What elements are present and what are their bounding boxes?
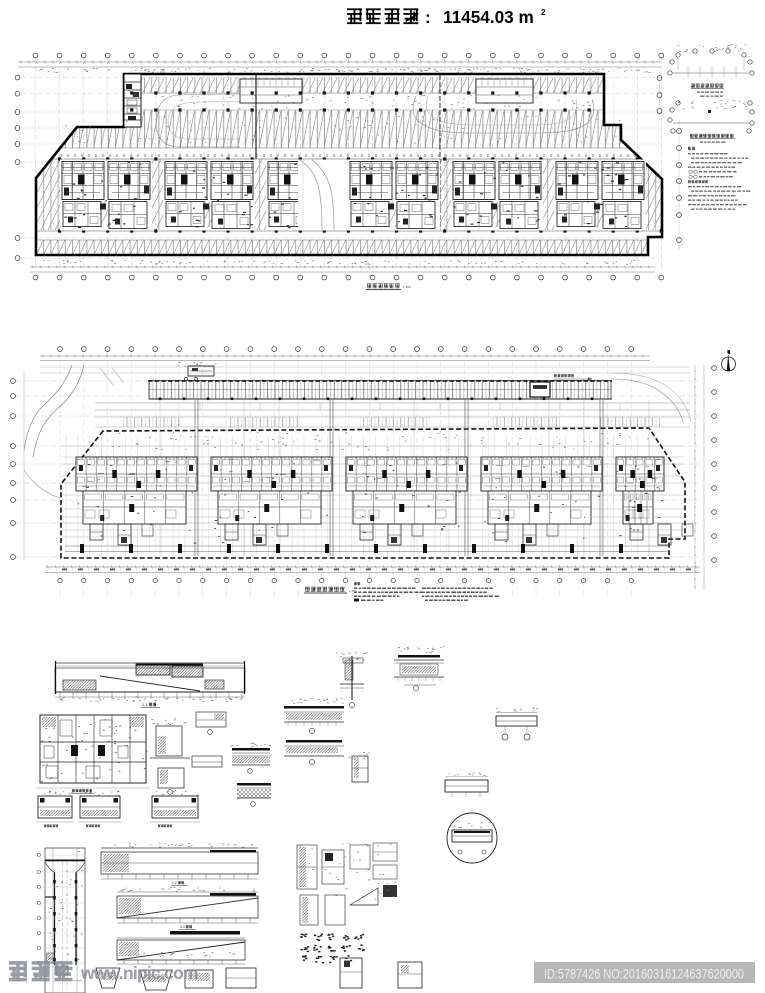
svg-text:11454.03 m: 11454.03 m (443, 7, 534, 27)
svg-text:2: 2 (541, 8, 546, 17)
svg-text:2-2: 2-2 (172, 881, 177, 885)
svg-text:1-1: 1-1 (142, 703, 148, 707)
svg-text:ID:5787426 NO:2016031612463762: ID:5787426 NO:20160316124637620000 (544, 967, 744, 982)
svg-text:3-3: 3-3 (180, 925, 185, 929)
svg-text::: : (425, 8, 431, 27)
svg-text:_www.nipic.com: _www.nipic.com (71, 963, 198, 983)
svg-text:1:150: 1:150 (403, 285, 411, 289)
